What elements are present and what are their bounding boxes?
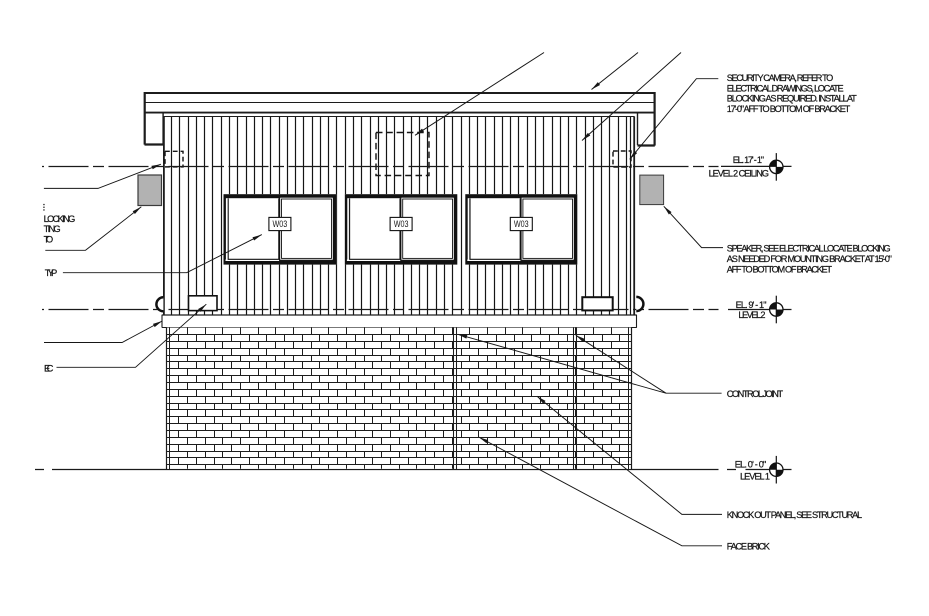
svg-text:KNOCK OUT PANEL, SEE STRUCTURA: KNOCK OUT PANEL, SEE STRUCTURAL <box>727 510 862 520</box>
svg-text:BLOCKING AS REQUIRED. INSTALL: BLOCKING AS REQUIRED. INSTALL AT <box>727 94 857 104</box>
svg-text:W03: W03 <box>394 219 409 229</box>
svg-text:FACE BRICK: FACE BRICK <box>727 542 771 552</box>
svg-text:LOCKING: LOCKING <box>44 214 76 224</box>
svg-text:SECURITY CAMERA, REFER TO: SECURITY CAMERA, REFER TO <box>727 73 834 83</box>
svg-text:EL. 0' - 0": EL. 0' - 0" <box>735 459 767 469</box>
svg-text:LEVEL 2 CEILING: LEVEL 2 CEILING <box>709 169 769 179</box>
svg-text:SPEAKER, SEE ELECTRICAL LOCATE: SPEAKER, SEE ELECTRICAL LOCATE BLOCKING <box>727 243 891 253</box>
svg-text:W03: W03 <box>273 219 288 229</box>
svg-text:LEVEL 1: LEVEL 1 <box>740 472 770 482</box>
svg-text:CONTROL JOINT: CONTROL JOINT <box>727 389 784 399</box>
svg-text:ELECTRICAL DRAWINGS, LOCATE: ELECTRICAL DRAWINGS, LOCATE <box>727 83 844 93</box>
svg-text:EL. 17' - 1": EL. 17' - 1" <box>733 155 764 165</box>
svg-text:17'-0" AFF TO BOTTOM OF BRACKE: 17'-0" AFF TO BOTTOM OF BRACKET <box>727 104 851 114</box>
svg-text:AS NEEDED FOR MOUNTING BRACKET: AS NEEDED FOR MOUNTING BRACKET AT 15'-0" <box>727 254 892 264</box>
svg-text:EL. 9' - 1": EL. 9' - 1" <box>736 300 767 310</box>
svg-text:TO: TO <box>44 234 54 244</box>
svg-text:AFF TO BOTTOM OF BRACKET: AFF TO BOTTOM OF BRACKET <box>727 265 833 275</box>
svg-text:W03: W03 <box>514 219 529 229</box>
svg-text:TING: TING <box>44 224 61 234</box>
svg-text:EC: EC <box>44 364 54 374</box>
svg-text:LEVEL 2: LEVEL 2 <box>738 310 765 320</box>
svg-text:TYP: TYP <box>45 268 58 278</box>
